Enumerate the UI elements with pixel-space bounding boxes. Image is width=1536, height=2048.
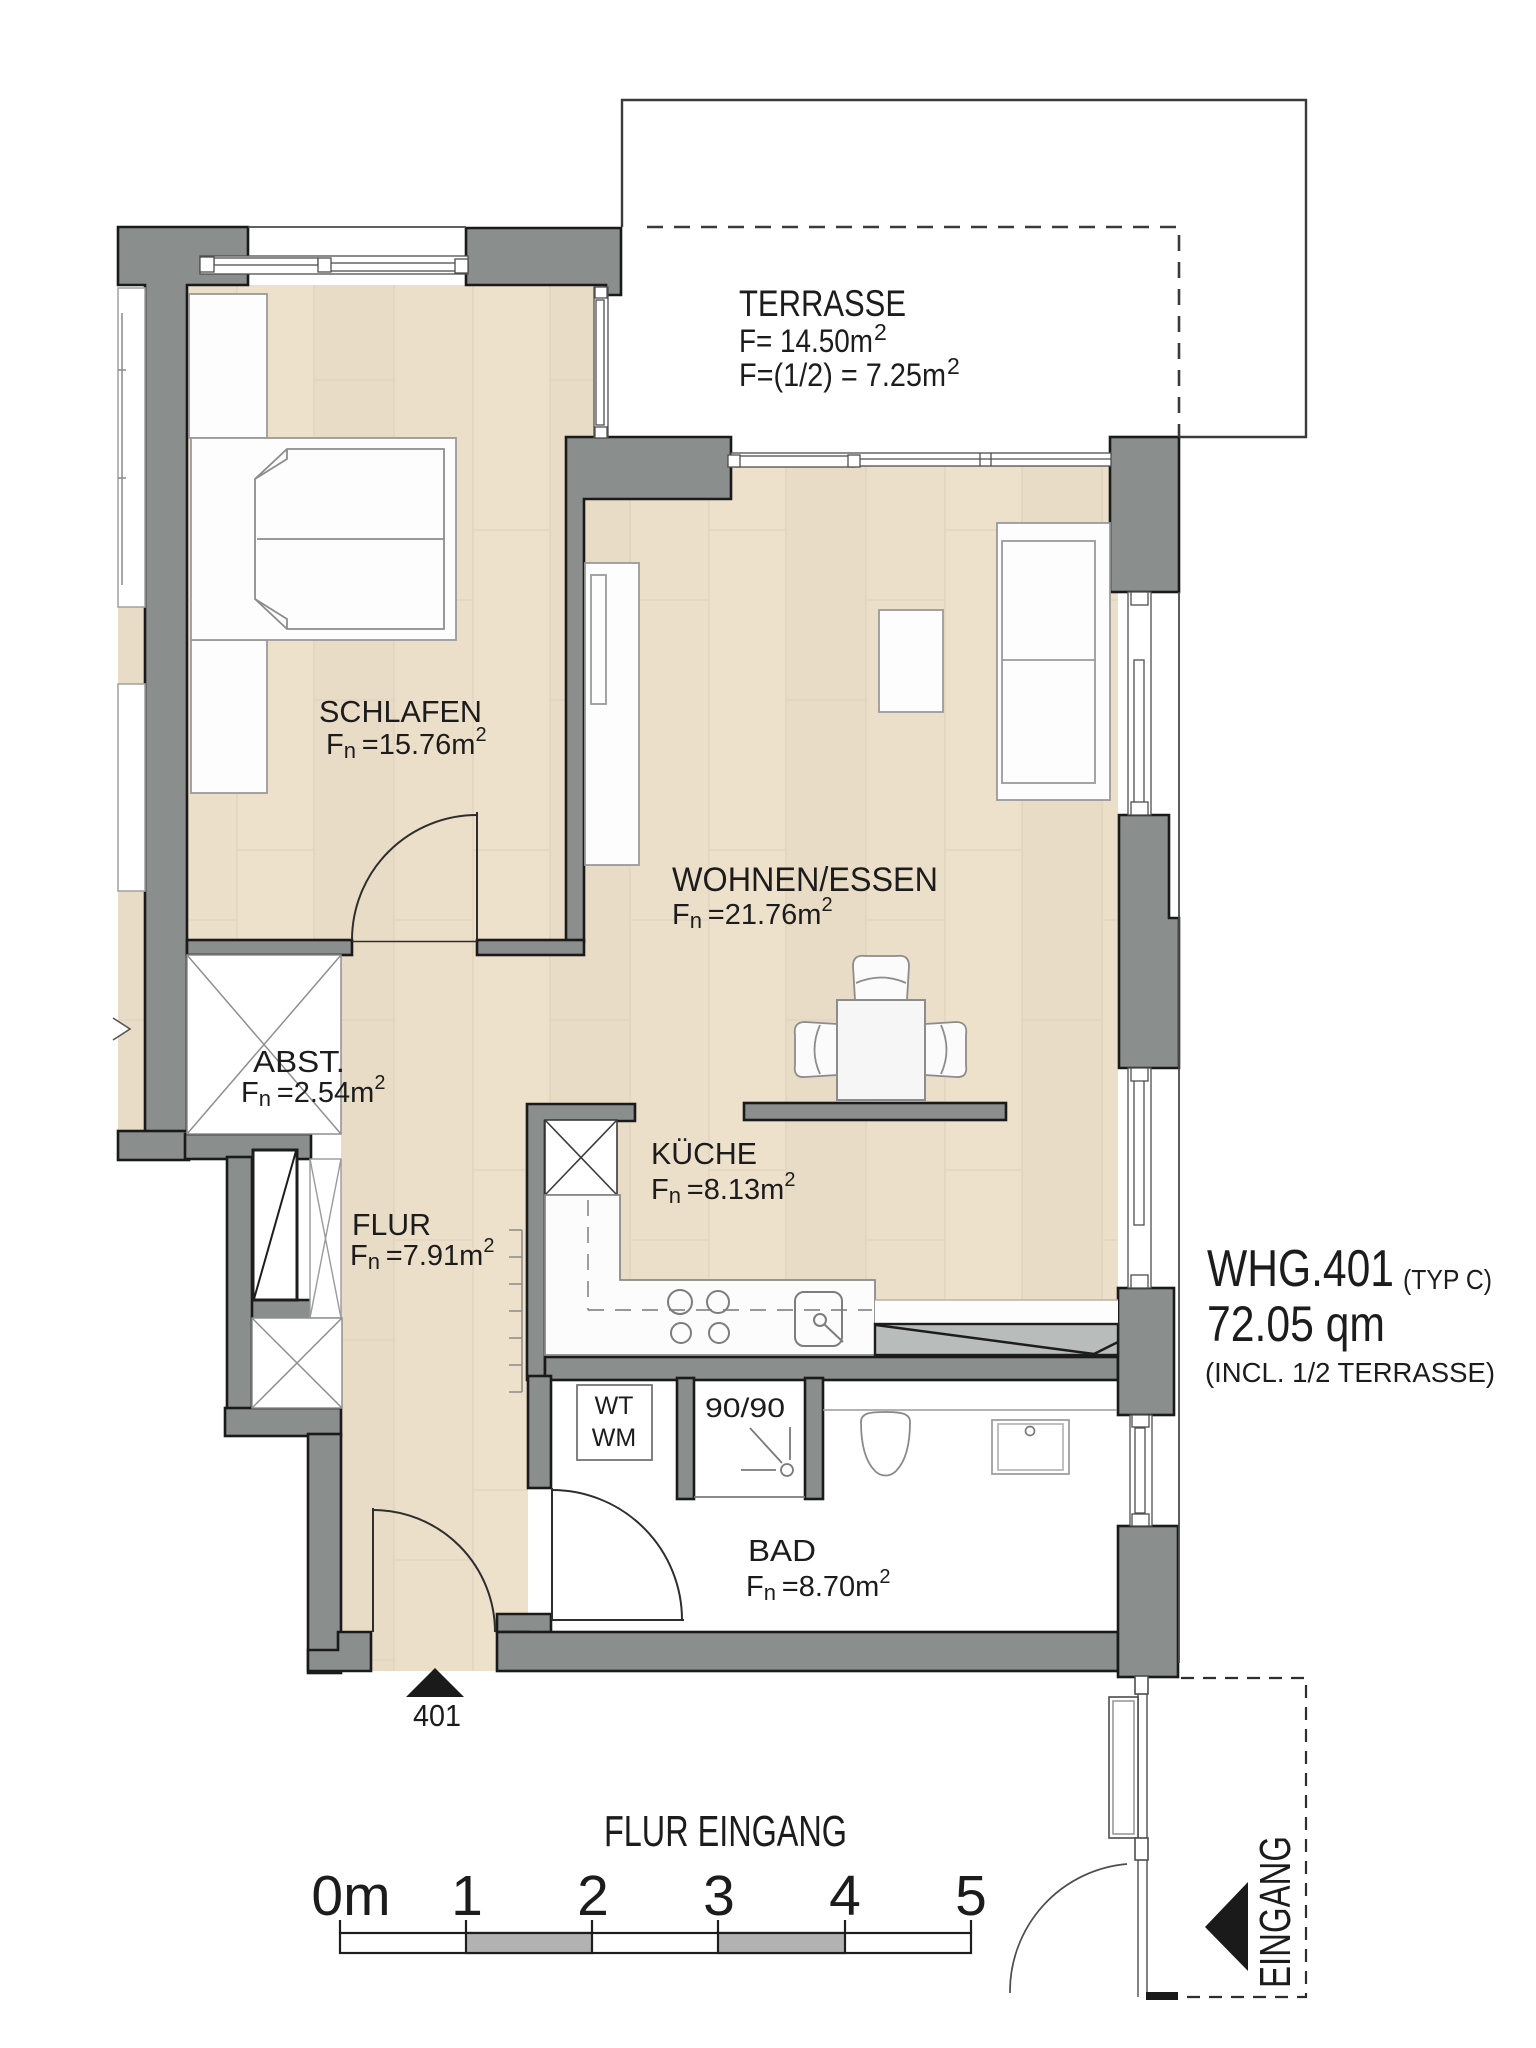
svg-text:5: 5 (955, 1864, 987, 1928)
svg-text:WHG.401: WHG.401 (1207, 1240, 1394, 1298)
svg-text:WOHNEN/ESSEN: WOHNEN/ESSEN (672, 861, 938, 899)
svg-text:ABST.: ABST. (253, 1044, 345, 1079)
svg-text:FLUR: FLUR (352, 1207, 431, 1242)
svg-text:2: 2 (947, 353, 960, 379)
svg-text:90/90: 90/90 (705, 1393, 785, 1423)
svg-text:2: 2 (577, 1864, 609, 1928)
svg-text:(TYP C): (TYP C) (1403, 1264, 1492, 1295)
svg-text:2: 2 (874, 319, 887, 345)
svg-text:KÜCHE: KÜCHE (651, 1136, 757, 1171)
svg-text:Fn =8.70m2: Fn =8.70m2 (746, 1566, 890, 1605)
svg-text:(INCL. 1/2 TERRASSE): (INCL. 1/2 TERRASSE) (1205, 1357, 1495, 1388)
svg-text:72.05 qm: 72.05 qm (1207, 1296, 1385, 1352)
svg-text:WT: WT (595, 1392, 634, 1420)
svg-text:F=(1/2) = 7.25m: F=(1/2) = 7.25m (739, 357, 946, 393)
svg-text:401: 401 (413, 1698, 461, 1733)
svg-text:WM: WM (592, 1424, 636, 1452)
svg-text:BAD: BAD (748, 1533, 816, 1568)
svg-text:4: 4 (829, 1864, 861, 1928)
svg-text:F= 14.50m: F= 14.50m (739, 323, 873, 359)
svg-text:1: 1 (451, 1864, 483, 1928)
svg-text:SCHLAFEN: SCHLAFEN (319, 694, 482, 729)
svg-text:FLUR EINGANG: FLUR EINGANG (604, 1807, 847, 1856)
svg-text:0m: 0m (311, 1864, 390, 1928)
svg-text:TERRASSE: TERRASSE (739, 283, 906, 324)
svg-text:EINGANG: EINGANG (1251, 1836, 1300, 1988)
svg-text:3: 3 (703, 1864, 735, 1928)
